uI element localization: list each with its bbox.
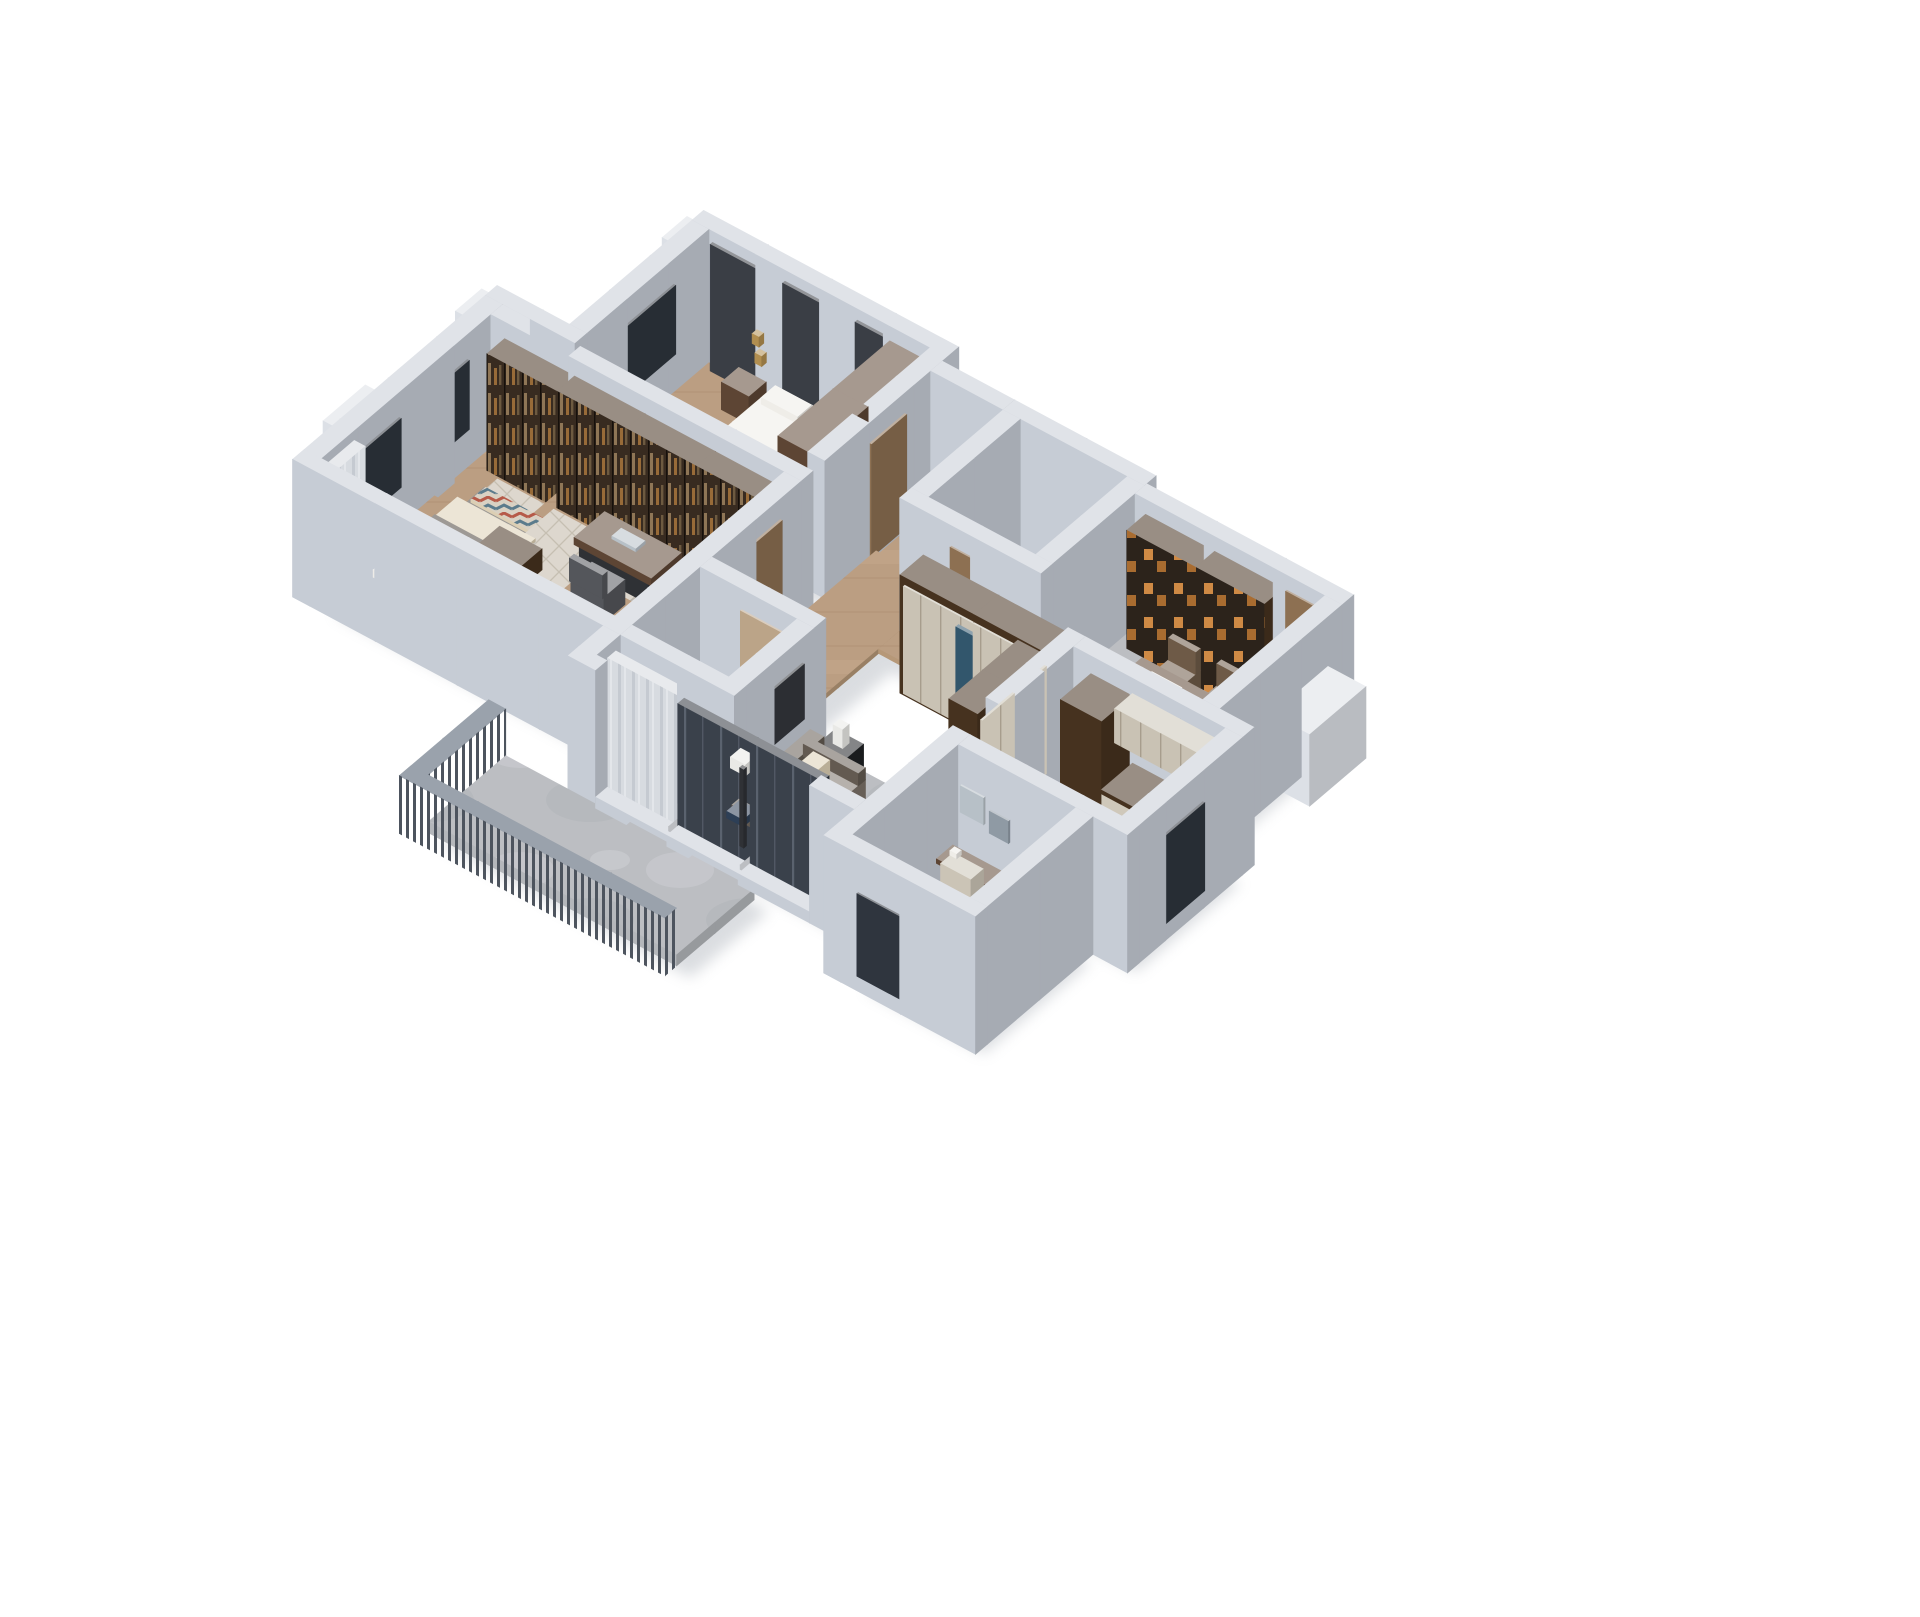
wall-master-north-east bbox=[801, 471, 813, 618]
lv-floor-lamp-pole-east bbox=[744, 768, 747, 849]
wall-living-south-west-east bbox=[596, 661, 608, 809]
wall-kitchen-north-east bbox=[1243, 727, 1255, 875]
apartment-model bbox=[293, 210, 1366, 1054]
wall-bedroom3-south-east bbox=[976, 907, 988, 1055]
wall-living-south-west-south bbox=[568, 656, 596, 808]
dn-chair-1-back-east bbox=[1196, 649, 1201, 675]
b3-art-1-east bbox=[984, 797, 985, 825]
b3-art-2-east bbox=[1009, 820, 1010, 843]
mb-desk-chair-back-east bbox=[603, 572, 608, 599]
door-top-bedroom-south bbox=[870, 444, 872, 558]
floorplan-render bbox=[0, 0, 1920, 1617]
wall-kitchen-south-east bbox=[1128, 825, 1140, 973]
lv-floor-lamp-pole-south bbox=[740, 768, 744, 848]
page bbox=[0, 0, 1920, 1617]
railing-south-east bbox=[665, 908, 677, 976]
